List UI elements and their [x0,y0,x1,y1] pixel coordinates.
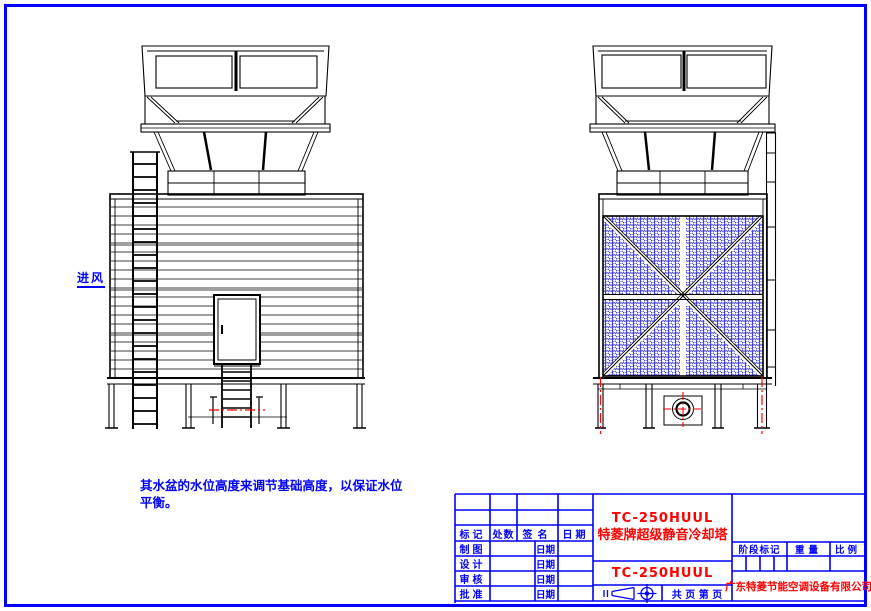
header-date: 日期 [558,525,593,541]
product-name: 特菱牌超级静音冷却塔 [597,528,727,544]
note-line-1: 其水盆的水位高度来调节基础高度，以保证水位 [140,477,403,494]
row-date-approved: 日期 [533,586,558,601]
first-angle-projection-icon [604,588,634,600]
row-label-drafted: 制图 [455,541,490,556]
header-mark: 标记 [455,525,490,541]
header-count: 处数 [490,525,517,541]
header-signature: 签名 [517,525,558,541]
row-label-designed: 设计 [455,556,490,571]
row-label-checked: 审核 [455,571,490,586]
air-inlet-label: 进风 [77,269,105,288]
pages-label: 共 页 第 页 [662,585,732,601]
water-level-note: 其水盆的水位高度来调节基础高度，以保证水位 平衡。 [140,477,430,511]
cad-drawing [0,0,871,611]
model-code: TC-250HUUL [612,511,714,527]
drawing-sheet: 进风 其水盆的水位高度来调节基础高度，以保证水位 平衡。 标记 处数 签名 日期… [0,0,871,611]
row-date-drafted: 日期 [533,541,558,556]
front-mesh-screen [602,215,763,376]
side-view [105,46,366,428]
outlet-flange [663,392,703,427]
center-mark-icon [638,584,657,603]
drawing-code: TC-250HUUL [593,561,732,585]
note-line-2: 平衡。 [140,494,178,511]
access-door [214,295,260,364]
weight-header: 重量 [787,542,830,556]
row-date-checked: 日期 [533,571,558,586]
scale-header: 比例 [830,542,865,556]
row-date-designed: 日期 [533,556,558,571]
drawing-title: TC-250HUUL 特菱牌超级静音冷却塔 [593,494,732,561]
stage-mark-header: 阶段标记 [732,542,787,556]
row-label-approved: 批准 [455,586,490,601]
company-name: 广东特菱节能空调设备有限公司 [732,571,865,601]
door-ladder [210,364,263,428]
